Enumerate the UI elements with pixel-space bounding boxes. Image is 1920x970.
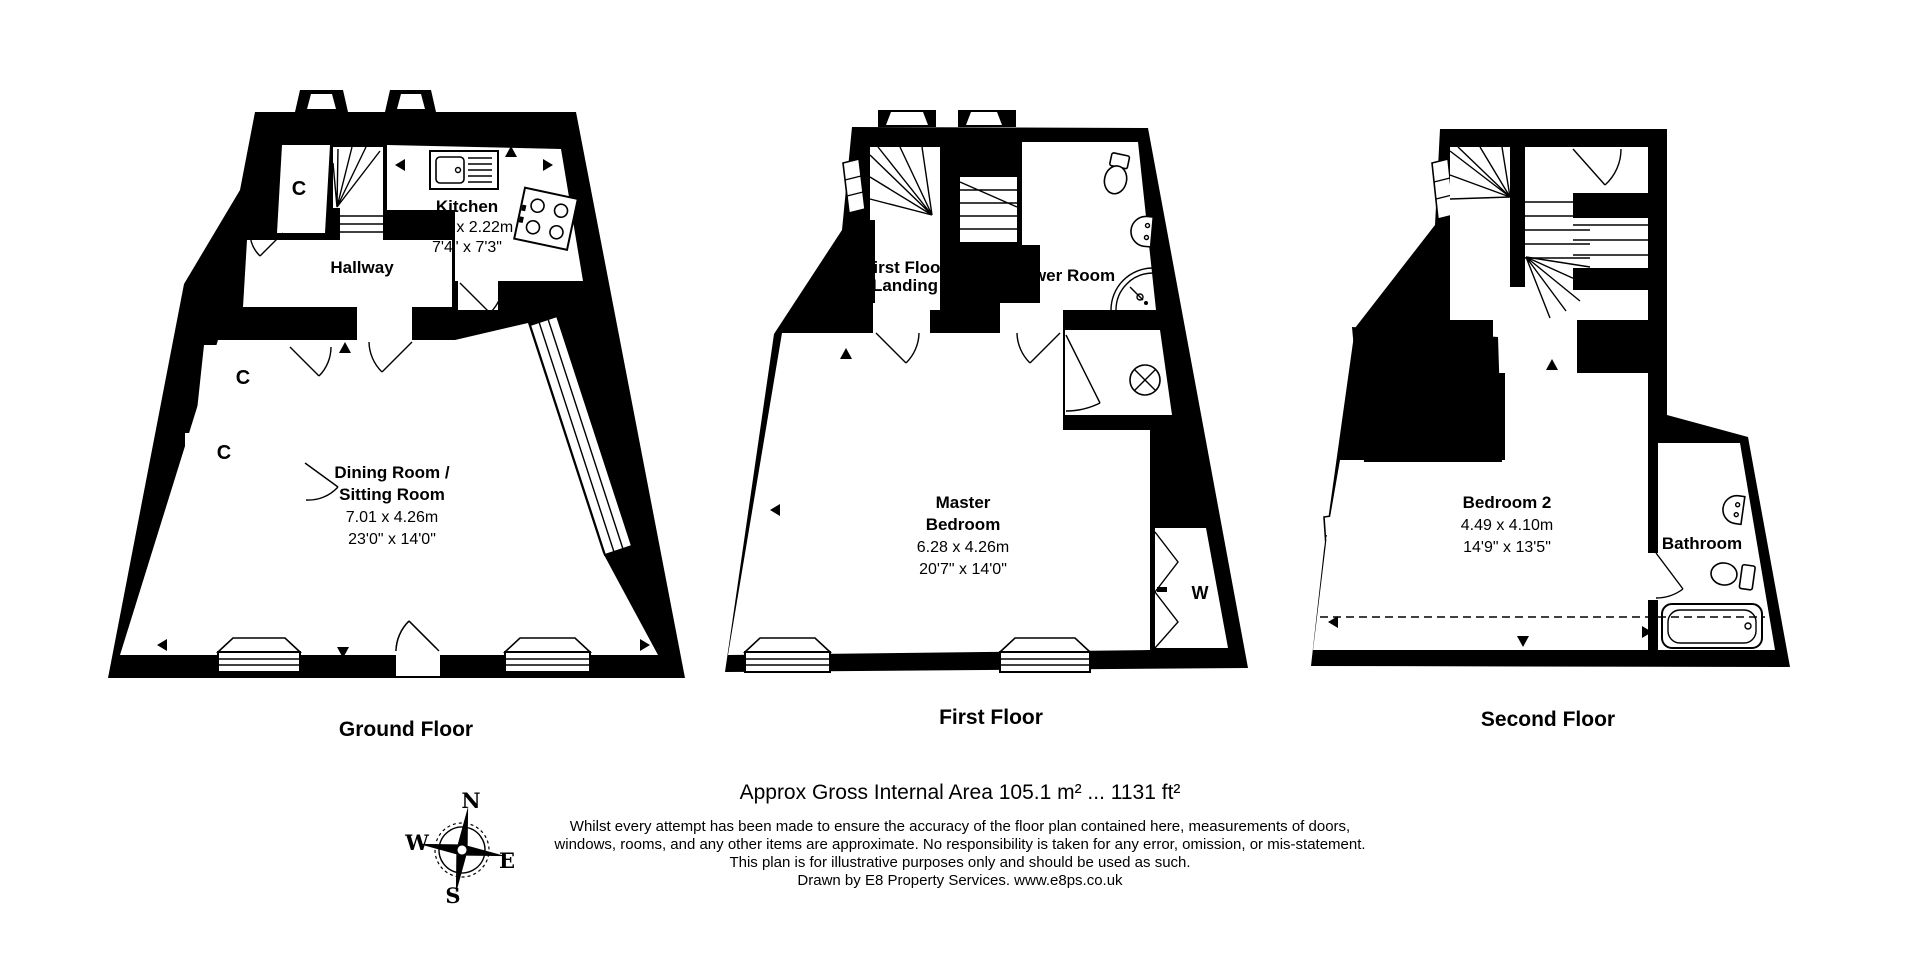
credit-line: Drawn by E8 Property Services. www.e8ps.…: [0, 872, 1920, 890]
bath-icon: [1662, 604, 1762, 648]
wardrobe-label: W: [1192, 583, 1209, 603]
kitchen-dim-imperial: 7'4" x 7'3": [432, 239, 502, 256]
chimney-flue-icon: [295, 90, 436, 112]
disclaimer-line-2: windows, rooms, and any other items are …: [0, 836, 1920, 854]
disclaimer-line-1: Whilst every attempt has been made to en…: [0, 818, 1920, 836]
sink-icon: [430, 151, 498, 189]
bathroom-label: Bathroom: [1662, 534, 1742, 553]
closet-2-label: C: [236, 367, 250, 389]
master-label-2: Bedroom: [926, 515, 1001, 534]
kitchen-dim-metric: 2.23 x 2.22m: [421, 219, 514, 236]
closet-1-label: C: [292, 178, 306, 200]
stairs-lower-area: [340, 208, 383, 242]
wardrobe-wall: [1150, 505, 1210, 528]
bathroom-door-opening: [1646, 553, 1660, 600]
bedroom2-label: Bedroom 2: [1463, 493, 1552, 512]
shower-door-opening: [1000, 303, 1063, 337]
stairs-band-lower: [1573, 268, 1648, 290]
dining-dim-imperial: 23'0" x 14'0": [348, 531, 436, 548]
ground-floor-caption: Ground Floor: [339, 718, 473, 742]
ground-floor-plan: C C C Kitchen 2.23 x 2.22m 7'4" x 7'3" H…: [100, 85, 700, 700]
second-floor-plan: Bedroom 2 4.49 x 4.10m 14'9" x 13'5" Bat…: [1300, 85, 1840, 700]
dining-label-2: Sitting Room: [339, 485, 445, 504]
stairs-flight-area: [960, 177, 1017, 242]
landing-label-1: First Floor: [863, 258, 947, 277]
floorplan-page: { "floorplan": { "ground": { "caption": …: [0, 0, 1920, 970]
extractor-fan-icon: [1130, 365, 1160, 395]
disclaimer-block: Whilst every attempt has been made to en…: [0, 818, 1920, 890]
chimney-flue-icon: [878, 110, 1016, 127]
kitchen-door-opening: [458, 270, 498, 310]
wardrobe-handle: [1157, 587, 1167, 592]
master-dim-imperial: 20'7" x 14'0": [919, 561, 1007, 578]
closet-3-label: C: [217, 442, 231, 464]
shower-room-label: Shower Room: [1001, 266, 1115, 285]
stairs-band-upper: [1573, 193, 1648, 218]
dining-door-opening: [357, 303, 412, 343]
landing-label-2: Landing: [872, 276, 938, 295]
disclaimer-line-3: This plan is for illustrative purposes o…: [0, 854, 1920, 872]
gross-internal-area: Approx Gross Internal Area 105.1 m² ... …: [0, 781, 1920, 805]
bedroom2-dim-metric: 4.49 x 4.10m: [1461, 517, 1554, 534]
lobby-wall: [1063, 415, 1190, 430]
stairs-wall-stub: [1510, 147, 1525, 287]
second-floor-caption: Second Floor: [1481, 708, 1615, 732]
master-dim-metric: 6.28 x 4.26m: [917, 539, 1010, 556]
bedroom2-dim-imperial: 14'9" x 13'5": [1463, 539, 1551, 556]
corridor-area: [1493, 320, 1577, 373]
kitchen-label: Kitchen: [436, 197, 498, 216]
landing-door-opening: [873, 303, 930, 337]
hallway-label: Hallway: [330, 258, 394, 277]
master-label-1: Master: [936, 493, 991, 512]
void-block: [1352, 327, 1502, 462]
dining-label-1: Dining Room /: [334, 463, 449, 482]
front-door-opening: [396, 648, 440, 676]
bathroom-partition: [1648, 373, 1658, 650]
dining-dim-metric: 7.01 x 4.26m: [346, 509, 439, 526]
first-floor-caption: First Floor: [939, 706, 1043, 730]
first-floor-plan: First Floor Landing Shower Room Master B…: [710, 85, 1270, 700]
hob-icon: [514, 188, 578, 250]
